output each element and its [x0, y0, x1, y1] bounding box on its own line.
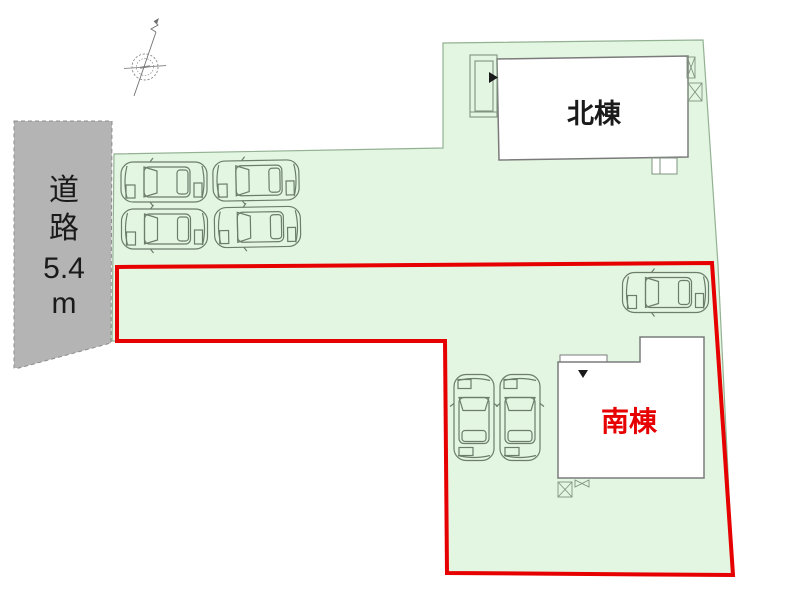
south-building-label: 南棟: [601, 406, 658, 437]
road-label-kanji-2: 路: [49, 212, 79, 245]
site-plan-canvas: 道 路 5.4 m: [0, 0, 787, 612]
road-label-kanji-1: 道: [49, 174, 79, 207]
north-annex-boxes: [652, 158, 677, 174]
road-width-value: 5.4: [43, 252, 85, 285]
compass-icon: [124, 18, 166, 96]
north-building: 北棟: [470, 55, 702, 174]
north-building-label: 北棟: [567, 99, 622, 129]
road-width-unit: m: [52, 287, 77, 320]
site-plan: 道 路 5.4 m: [0, 0, 787, 612]
